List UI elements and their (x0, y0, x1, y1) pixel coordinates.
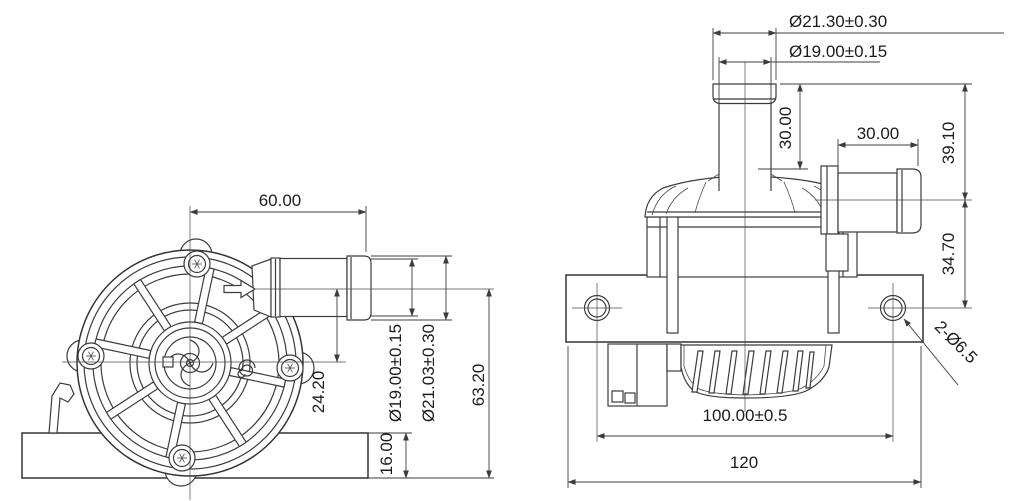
dim-front-axis-offset: 24.20 (309, 371, 328, 414)
dim-outlet-length: 30.00 (857, 124, 900, 143)
dim-outlet-axis-to-mount: 34.70 (939, 233, 958, 276)
mounting-plate (566, 275, 923, 342)
dim-front-bracket-thickness: 16.00 (377, 433, 396, 476)
dim-front-total-height: 63.20 (469, 364, 488, 407)
bracket-tab (49, 383, 74, 433)
drawing-svg: 60.00 24.20 Ø19.00±0.15 Ø21.03±0.30 63.2… (0, 0, 1010, 501)
dim-front-outlet-inner-dia: Ø19.00±0.15 (386, 324, 405, 422)
dim-mount-holes: 2-Ø6.5 (931, 317, 981, 367)
side-view (566, 62, 972, 442)
dim-inlet-to-outlet-axis: 39.10 (939, 122, 958, 165)
dim-front-width: 60.00 (259, 191, 302, 210)
dim-hole-spacing: 100.00±0.5 (703, 406, 788, 425)
outlet-pipe (821, 166, 921, 271)
bottom-housing (608, 344, 832, 406)
dim-inlet-outer-dia: Ø21.30±0.30 (789, 12, 887, 31)
dim-inlet-height: 30.00 (776, 107, 795, 150)
dim-inlet-inner-dia: Ø19.00±0.15 (789, 42, 887, 61)
dim-overall-width: 120 (730, 453, 758, 472)
dim-front-outlet-outer-dia: Ø21.03±0.30 (419, 324, 438, 422)
technical-drawing: 60.00 24.20 Ø19.00±0.15 Ø21.03±0.30 63.2… (0, 0, 1010, 501)
